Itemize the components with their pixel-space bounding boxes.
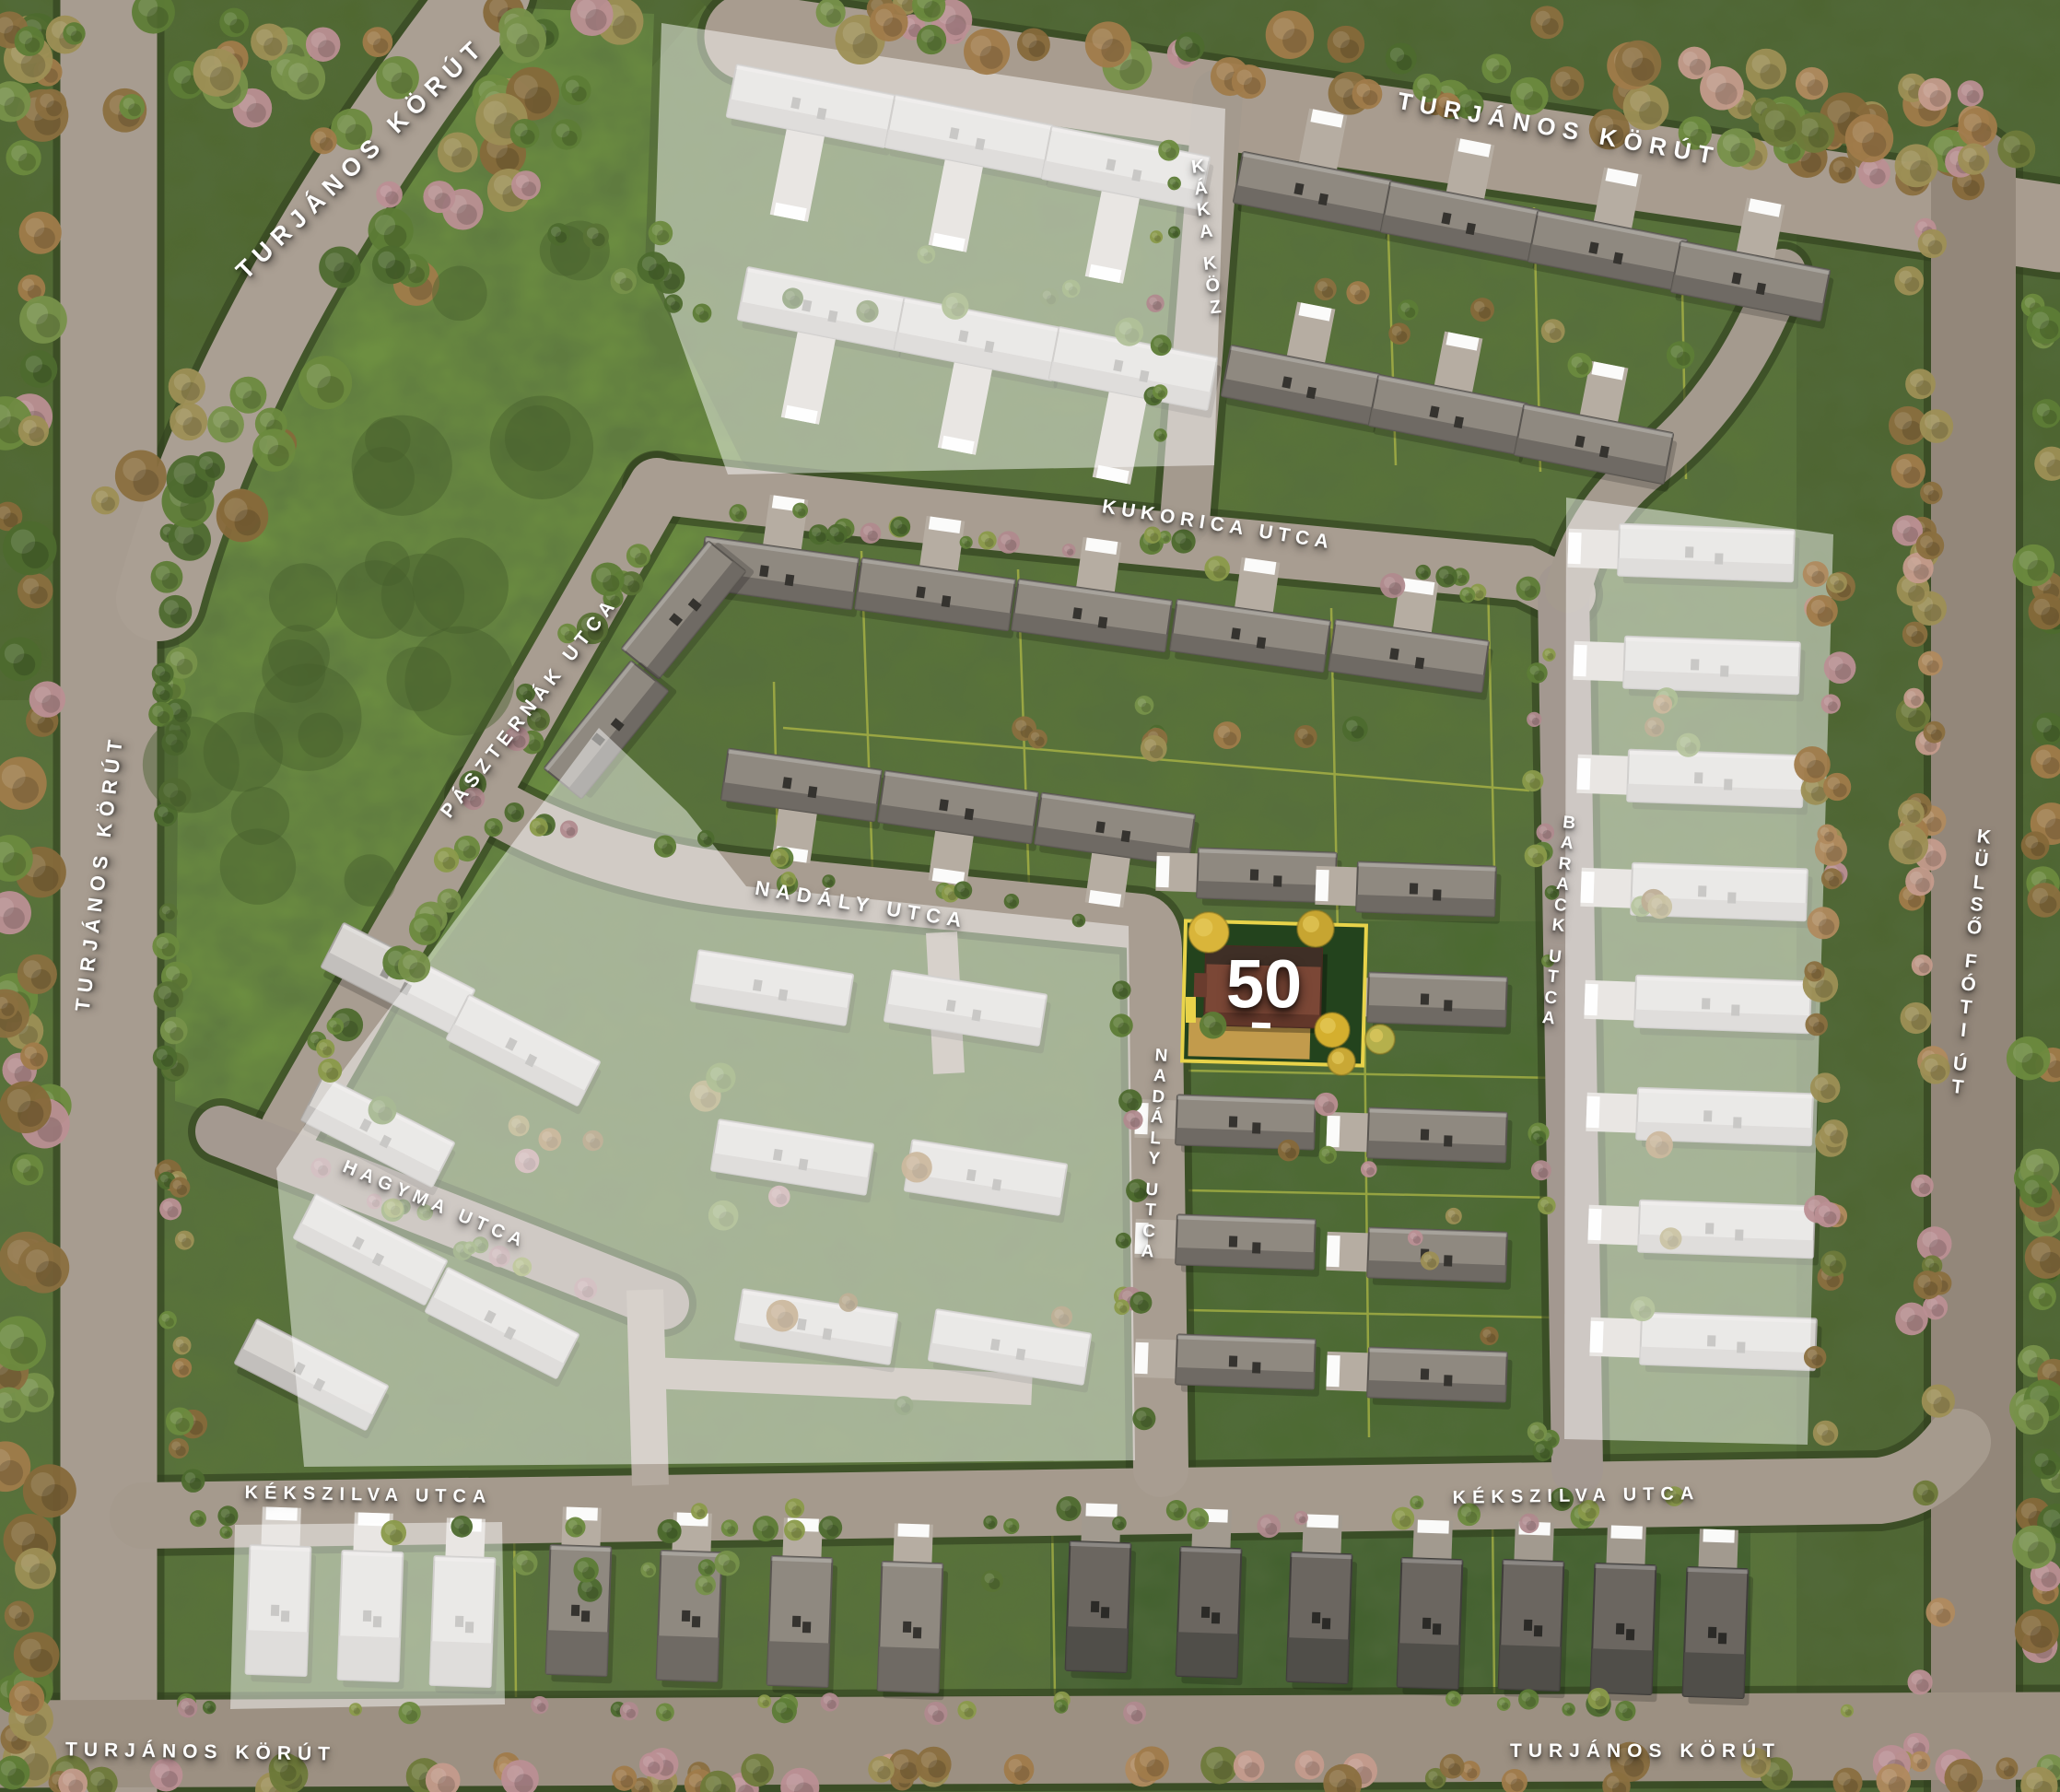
site-plan-map: 50 TURJÁNOS KÖRÚTTURJÁNOS KÖRÚTKÁKAKÖZKU… [0, 0, 2060, 1792]
map-render [0, 0, 2060, 1792]
lot-50[interactable] [1182, 910, 1395, 1075]
